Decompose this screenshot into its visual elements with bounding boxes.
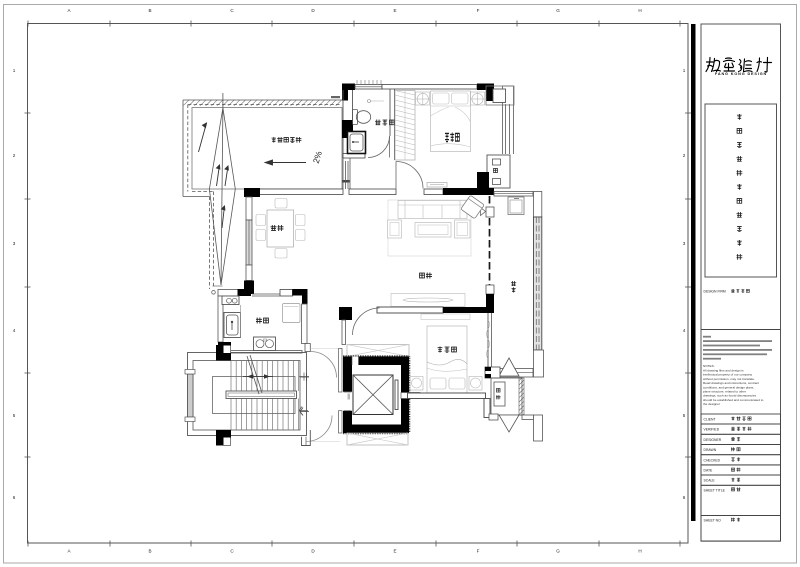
- svg-text:SHEET TITLE: SHEET TITLE: [704, 488, 726, 492]
- svg-text:E: E: [393, 8, 396, 13]
- svg-text:3: 3: [683, 241, 686, 246]
- svg-text:E: E: [393, 549, 396, 554]
- svg-text:DRAWN: DRAWN: [704, 448, 717, 452]
- svg-text:1: 1: [13, 68, 16, 73]
- svg-text:DATE: DATE: [704, 469, 714, 473]
- svg-text:6: 6: [13, 495, 16, 500]
- svg-text:F: F: [477, 8, 480, 13]
- svg-text:SHEET NO: SHEET NO: [704, 519, 722, 523]
- svg-text:1: 1: [683, 68, 686, 73]
- svg-text:H: H: [638, 549, 641, 554]
- svg-text:CHECKED: CHECKED: [704, 458, 721, 462]
- svg-text:CLIENT: CLIENT: [704, 418, 716, 422]
- svg-text:5: 5: [683, 413, 686, 418]
- svg-text:2: 2: [683, 153, 686, 158]
- svg-text:B: B: [148, 549, 151, 554]
- svg-text:2: 2: [13, 153, 16, 158]
- svg-text:F: F: [477, 549, 480, 554]
- svg-text:B: B: [148, 8, 151, 13]
- svg-text:NOTES:: NOTES:: [703, 364, 715, 368]
- svg-text:DESIGN FIRM: DESIGN FIRM: [704, 290, 726, 294]
- svg-text:4: 4: [13, 328, 16, 333]
- svg-text:SCALE: SCALE: [704, 479, 716, 483]
- svg-text:6: 6: [683, 495, 686, 500]
- svg-text:5: 5: [13, 413, 16, 418]
- svg-text:H: H: [638, 8, 641, 13]
- svg-text:VERIFIED: VERIFIED: [704, 428, 720, 432]
- svg-text:DESIGNER: DESIGNER: [704, 438, 722, 442]
- svg-text:the designer: the designer: [703, 402, 720, 406]
- svg-text:FANG KONG DESIGN: FANG KONG DESIGN: [715, 72, 767, 76]
- svg-text:G: G: [556, 8, 560, 13]
- svg-text:4: 4: [683, 328, 686, 333]
- svg-text:G: G: [556, 549, 560, 554]
- svg-text:3: 3: [13, 241, 16, 246]
